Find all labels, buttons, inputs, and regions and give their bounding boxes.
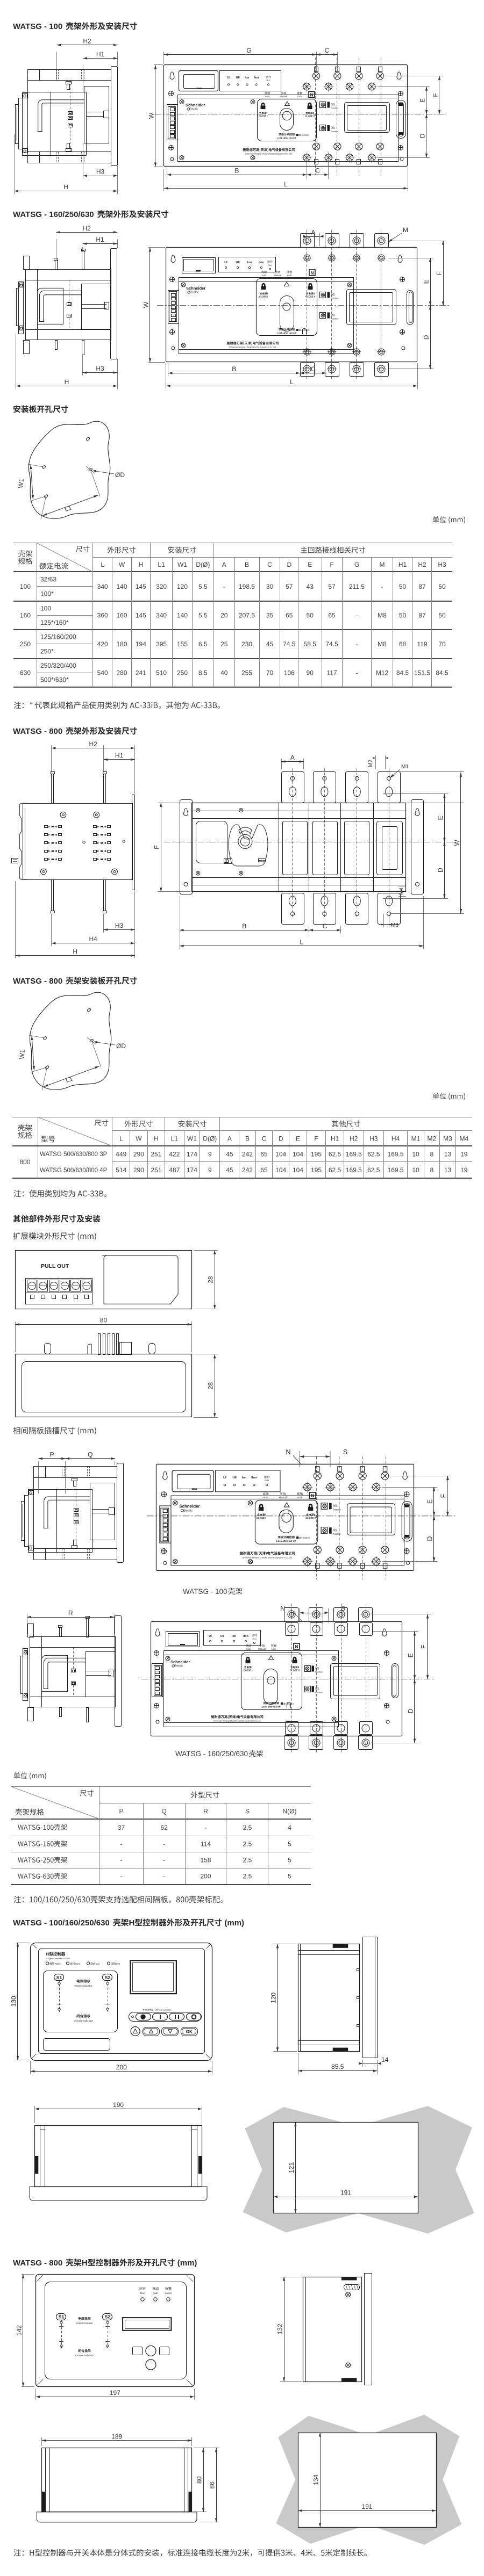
svg-text:W1: W1 [187, 1135, 197, 1142]
svg-text:H2: H2 [83, 225, 91, 232]
svg-text:-: - [356, 669, 358, 676]
svg-text:A: A [227, 1135, 232, 1142]
svg-text:B: B [242, 922, 246, 930]
svg-text:85.5: 85.5 [331, 2063, 344, 2070]
svg-text:80: 80 [196, 2476, 203, 2484]
svg-text:P: P [119, 1808, 123, 1815]
svg-text:W1: W1 [17, 478, 25, 489]
svg-text:62.5: 62.5 [329, 1150, 341, 1158]
svg-text:35: 35 [266, 612, 274, 619]
svg-text:R: R [203, 1808, 208, 1815]
svg-text:Schneider Wingoal (Tianjin) El: Schneider Wingoal (Tianjin) Electric Equ… [229, 347, 277, 349]
svg-text:H4: H4 [89, 935, 98, 943]
svg-text:9: 9 [208, 1150, 212, 1158]
svg-text:CLOSE II: CLOSE II [290, 1669, 300, 1672]
svg-text:L1: L1 [158, 561, 165, 568]
svg-text:A: A [290, 754, 295, 761]
svg-text:IIon: IIon [254, 76, 259, 80]
svg-text:D: D [287, 561, 291, 568]
svg-text:119: 119 [417, 640, 427, 648]
svg-text:M1: M1 [411, 1135, 421, 1142]
svg-text:142: 142 [16, 2325, 23, 2336]
svg-text:WATSG - 160/250/630: WATSG - 160/250/630 [175, 1750, 248, 1758]
svg-text:194: 194 [136, 640, 146, 648]
svg-text:IIon: IIon [243, 1635, 248, 1638]
svg-text:C: C [267, 561, 272, 568]
svg-text:45: 45 [226, 1166, 233, 1174]
svg-text:Lock: Lock [297, 1496, 303, 1499]
svg-text:Electric: Electric [174, 1665, 183, 1668]
svg-text:449: 449 [116, 1150, 126, 1158]
svg-text:13: 13 [444, 1166, 452, 1174]
svg-text:140: 140 [177, 612, 188, 619]
svg-text:-: - [120, 1840, 123, 1848]
svg-text:R: R [68, 1610, 73, 1617]
svg-text:Manual operation: Manual operation [155, 2009, 172, 2011]
svg-text:F: F [153, 845, 161, 849]
svg-text:S1: S1 [59, 2314, 65, 2320]
svg-text:140: 140 [116, 583, 127, 590]
svg-text:114: 114 [201, 1840, 211, 1848]
svg-text:WATSG 500/630/800 4P: WATSG 500/630/800 4P [40, 1167, 108, 1174]
svg-text:-: - [163, 1857, 165, 1864]
svg-text:132: 132 [276, 2324, 284, 2334]
svg-text:H2: H2 [350, 1135, 358, 1142]
svg-text:80: 80 [100, 1317, 108, 1324]
svg-text:169.5: 169.5 [388, 1150, 404, 1158]
svg-text:255: 255 [241, 669, 252, 676]
svg-text:Ø≈3.5mm: Ø≈3.5mm [283, 1702, 294, 1705]
svg-text:68: 68 [399, 640, 407, 648]
svg-text:Power Indicator: Power Indicator [74, 1985, 92, 1988]
svg-text:L1: L1 [171, 1135, 179, 1142]
svg-text:87: 87 [418, 612, 426, 619]
svg-text:L: L [300, 938, 303, 946]
svg-text:65: 65 [260, 1150, 268, 1158]
svg-text:F: F [440, 1493, 447, 1498]
svg-text:B: B [234, 167, 239, 175]
svg-text:F: F [432, 93, 439, 97]
svg-text:E: E [407, 1653, 415, 1657]
svg-text:8: 8 [430, 1166, 433, 1174]
svg-text:Lock after I&II off: Lock after I&II off [261, 1706, 281, 1708]
svg-text:H3: H3 [96, 168, 105, 176]
svg-text:190: 190 [113, 2101, 124, 2109]
svg-text:WATSG - 160/250/630: WATSG - 160/250/630 [13, 210, 96, 219]
svg-text:6.5: 6.5 [198, 640, 208, 648]
svg-text:90: 90 [307, 669, 314, 676]
svg-text:UII: UII [232, 1476, 237, 1480]
svg-text:191: 191 [361, 2503, 372, 2510]
svg-text:S2: S2 [105, 1975, 111, 1980]
svg-text:Schneider Wingoal (Tianjin) El: Schneider Wingoal (Tianjin) Electric Equ… [213, 1720, 261, 1722]
svg-text:-: - [381, 583, 383, 590]
svg-text:125*/160*: 125*/160* [40, 619, 69, 626]
svg-text:74.5: 74.5 [283, 640, 296, 648]
svg-text:100: 100 [20, 583, 31, 590]
svg-text:Position: Position [315, 1671, 323, 1673]
svg-text:D: D [426, 1536, 433, 1541]
svg-text:H3: H3 [96, 365, 104, 372]
svg-text:Run: Run [266, 79, 270, 82]
svg-text:D: D [419, 133, 426, 138]
svg-text:N: N [295, 1644, 298, 1649]
svg-text:251: 251 [151, 1166, 161, 1174]
svg-text:Ø≈3.5mm: Ø≈3.5mm [299, 134, 309, 136]
svg-text:57: 57 [286, 583, 293, 590]
svg-text:198.5: 198.5 [239, 583, 255, 590]
svg-text:E: E [437, 816, 444, 820]
svg-text:W: W [453, 839, 461, 846]
svg-text:S: S [245, 1808, 250, 1815]
svg-text:UII: UII [220, 1635, 224, 1638]
svg-text:514: 514 [116, 1166, 126, 1174]
svg-text:M2: M2 [427, 1135, 436, 1142]
svg-text:65: 65 [260, 1166, 268, 1174]
svg-text:H: H [154, 1135, 159, 1142]
svg-text:G: G [354, 561, 359, 568]
svg-text:62.5: 62.5 [367, 1166, 380, 1174]
svg-text:-: - [223, 583, 225, 590]
svg-text:N: N [280, 1605, 285, 1612]
svg-text:Lock: Lock [287, 274, 293, 277]
svg-text:H: H [63, 183, 68, 191]
svg-text:5: 5 [288, 1857, 291, 1864]
svg-text:30: 30 [266, 583, 274, 590]
svg-text:28: 28 [207, 1276, 215, 1283]
svg-text:Q: Q [88, 1451, 92, 1459]
svg-text:(mm): (mm) [222, 1918, 244, 1928]
svg-text:H: H [129, 1918, 135, 1928]
svg-text:M1: M1 [401, 764, 409, 770]
svg-text:207.5: 207.5 [239, 612, 255, 619]
svg-text:8: 8 [430, 1150, 433, 1158]
svg-text:250: 250 [20, 640, 31, 648]
svg-text:Manual: Manual [280, 95, 287, 98]
svg-text:87: 87 [418, 583, 426, 590]
svg-text:280: 280 [116, 669, 127, 676]
svg-text:Electric: Electric [183, 1509, 193, 1512]
svg-text:120: 120 [177, 583, 188, 590]
svg-text:106: 106 [284, 669, 295, 676]
svg-text:(mm): (mm) [175, 2258, 197, 2268]
svg-text:Ø≈3.5mm: Ø≈3.5mm [299, 329, 309, 331]
svg-text:E: E [423, 279, 430, 284]
svg-text:Ion: Ion [247, 261, 252, 264]
svg-text:Run: Run [265, 1479, 269, 1482]
svg-text:Position: Position [331, 107, 338, 110]
svg-text:UI: UI [223, 1476, 226, 1480]
svg-text:UI: UI [209, 1635, 212, 1638]
svg-text:S1: S1 [56, 1975, 62, 1980]
svg-text:W: W [136, 1135, 142, 1142]
svg-text:D: D [407, 1708, 415, 1713]
svg-text:Ion: Ion [245, 76, 250, 80]
svg-text:13: 13 [444, 1150, 452, 1158]
svg-text:S: S [343, 1448, 347, 1456]
svg-text:M2: M2 [368, 760, 374, 767]
svg-text:422: 422 [169, 1150, 180, 1158]
svg-text:H2: H2 [83, 37, 91, 45]
svg-text:5.5: 5.5 [198, 612, 208, 619]
svg-text:360: 360 [97, 612, 108, 619]
svg-text:160: 160 [20, 612, 31, 619]
svg-text:L: L [284, 181, 288, 188]
svg-text:Run: Run [268, 264, 272, 266]
svg-text:250*: 250* [40, 647, 54, 655]
svg-text:10: 10 [412, 1166, 419, 1174]
svg-text:H3: H3 [115, 922, 124, 929]
svg-text:160: 160 [116, 612, 127, 619]
svg-text:Lock after I&II off: Lock after I&II off [277, 137, 296, 140]
svg-text:Auto: Auto [265, 95, 270, 98]
svg-text:251: 251 [151, 1150, 161, 1158]
svg-text:250/320/400: 250/320/400 [40, 662, 76, 669]
svg-text:5: 5 [288, 1840, 291, 1848]
svg-text:43: 43 [307, 583, 314, 590]
svg-text:H1: H1 [331, 1135, 339, 1142]
svg-text:Closure Indicator: Closure Indicator [75, 2354, 94, 2357]
svg-text:CLOSE II: CLOSE II [305, 115, 315, 118]
svg-text:Manual: Manual [274, 274, 281, 277]
svg-text:117: 117 [326, 669, 337, 676]
svg-text:2.5: 2.5 [243, 1824, 252, 1831]
svg-text:230: 230 [241, 640, 252, 648]
svg-text:H4: H4 [392, 1135, 400, 1142]
svg-text:151.5: 151.5 [414, 669, 430, 676]
svg-text:F: F [314, 1135, 318, 1142]
svg-text:8.5: 8.5 [198, 669, 208, 676]
svg-text:CLOSE I: CLOSE I [257, 1517, 266, 1519]
svg-text:G: G [246, 47, 251, 54]
svg-text:D(Ø): D(Ø) [196, 561, 210, 568]
svg-text:L: L [101, 561, 104, 568]
svg-text:2.5: 2.5 [243, 1840, 252, 1848]
svg-text:74.5: 74.5 [325, 640, 338, 648]
svg-text:Run: Run [140, 2292, 145, 2295]
svg-text:145: 145 [136, 583, 146, 590]
svg-text:Lock: Lock [297, 95, 303, 98]
svg-text:104: 104 [275, 1166, 286, 1174]
svg-text:WATSG - 800: WATSG - 800 [13, 727, 65, 736]
svg-text:Position: Position [333, 1533, 341, 1535]
svg-text:WATSG - 100: WATSG - 100 [183, 1588, 227, 1596]
svg-text:M4: M4 [459, 1135, 468, 1142]
svg-text:H: H [65, 378, 69, 386]
svg-text:50: 50 [438, 583, 446, 590]
svg-text:S: S [341, 1605, 345, 1612]
svg-text:-: - [120, 1873, 123, 1880]
svg-text:M8: M8 [378, 640, 387, 648]
svg-text:100*: 100* [40, 590, 54, 598]
svg-text:N: N [286, 1448, 290, 1456]
svg-text:630: 630 [20, 669, 31, 676]
svg-text:Schneider Wingoal (Tianjin) El: Schneider Wingoal (Tianjin) Electric Equ… [243, 1556, 293, 1558]
svg-text:195: 195 [311, 1166, 322, 1174]
svg-text:IIon: IIon [251, 1476, 257, 1480]
svg-text:32/63: 32/63 [40, 575, 56, 583]
svg-text:62.5: 62.5 [329, 1166, 341, 1174]
svg-text:Ion: Ion [232, 1635, 237, 1638]
svg-text:Manual: Manual [279, 1496, 287, 1499]
svg-text:104: 104 [293, 1150, 303, 1158]
svg-text:169.5: 169.5 [346, 1166, 362, 1174]
svg-text:E: E [296, 1135, 300, 1142]
svg-text:Schneider: Schneider [186, 286, 205, 291]
svg-text:Com: Com [75, 1962, 80, 1965]
svg-text:19: 19 [460, 1150, 468, 1158]
svg-text:242: 242 [242, 1166, 253, 1174]
svg-text:C: C [315, 167, 320, 175]
svg-text:Auto: Auto [262, 274, 267, 277]
svg-text:E: E [419, 98, 426, 103]
svg-text:WATSG - 800: WATSG - 800 [13, 2258, 65, 2268]
svg-text:ØD: ØD [116, 1042, 126, 1050]
svg-text:197: 197 [110, 2389, 120, 2397]
svg-text:28: 28 [207, 1382, 215, 1390]
svg-text:70: 70 [438, 640, 446, 648]
svg-text:Fire: Fire [116, 1962, 120, 1965]
svg-text:134: 134 [312, 2474, 320, 2485]
svg-text:PULL OUT: PULL OUT [41, 1263, 69, 1269]
svg-text:WATSG 500/630/800 3P: WATSG 500/630/800 3P [40, 1151, 108, 1158]
svg-text:169.5: 169.5 [388, 1166, 404, 1174]
svg-text:D(Ø): D(Ø) [203, 1135, 217, 1142]
svg-text:H3: H3 [438, 561, 446, 568]
svg-text:Schneider: Schneider [179, 1504, 200, 1509]
svg-text:H1: H1 [96, 236, 104, 243]
svg-text:195: 195 [311, 1150, 322, 1158]
svg-text:420: 420 [97, 640, 108, 648]
svg-text:37: 37 [118, 1824, 125, 1831]
svg-text:H3: H3 [369, 1135, 378, 1142]
svg-text:-: - [163, 1873, 165, 1880]
svg-text:540: 540 [97, 669, 108, 676]
svg-text:121: 121 [288, 2162, 295, 2173]
svg-text:62: 62 [160, 1824, 168, 1831]
svg-text:Electric: Electric [190, 291, 199, 294]
svg-text:19: 19 [460, 1166, 468, 1174]
svg-text:IIon: IIon [259, 261, 264, 264]
svg-text:45: 45 [266, 640, 274, 648]
svg-text:250: 250 [177, 669, 188, 676]
svg-text:E: E [426, 1499, 433, 1504]
svg-text:UI: UI [227, 76, 230, 80]
svg-text:D: D [423, 335, 430, 340]
svg-text:50: 50 [399, 583, 407, 590]
svg-text:UI: UI [224, 261, 227, 264]
svg-text:-: - [120, 1857, 123, 1864]
svg-text:B: B [232, 365, 236, 373]
svg-text:5: 5 [288, 1873, 291, 1880]
svg-text:A: A [222, 561, 226, 568]
svg-text:Alarm: Alarm [165, 2292, 172, 2295]
svg-text:200: 200 [116, 2063, 127, 2071]
svg-text:Closure Indicator: Closure Indicator [74, 2019, 94, 2023]
svg-text:H: H [139, 561, 144, 568]
svg-text:H2: H2 [89, 740, 98, 748]
svg-text:D: D [279, 1135, 283, 1142]
svg-text:120: 120 [270, 1992, 277, 2003]
svg-text:Position: Position [331, 130, 338, 133]
svg-text:Run: Run [252, 1637, 256, 1640]
svg-text:P: P [49, 1451, 54, 1459]
svg-text:169.5: 169.5 [346, 1150, 362, 1158]
svg-text:Alarm: Alarm [55, 1962, 61, 1965]
svg-text:Lock: Lock [272, 1648, 277, 1650]
svg-text:50: 50 [438, 612, 446, 619]
svg-text:-: - [205, 1824, 207, 1831]
svg-text:145: 145 [136, 612, 146, 619]
svg-text:CLOSE I: CLOSE I [259, 295, 268, 298]
svg-text:F: F [436, 271, 443, 275]
svg-text:86: 86 [209, 2481, 216, 2489]
svg-text:E: E [308, 561, 312, 568]
svg-text:Electric: Electric [189, 108, 198, 111]
svg-text:L: L [119, 1135, 123, 1142]
svg-text:CLOSE II: CLOSE II [305, 295, 315, 298]
svg-text:M8: M8 [378, 612, 387, 619]
svg-text:9: 9 [208, 1166, 212, 1174]
svg-text:487: 487 [169, 1166, 180, 1174]
svg-text:M12: M12 [376, 669, 389, 676]
svg-text:OK: OK [186, 2030, 193, 2034]
svg-text:Auto: Auto [246, 1648, 251, 1650]
svg-text:320: 320 [156, 583, 167, 590]
svg-text:5.5: 5.5 [198, 583, 208, 590]
svg-text:Schneider Wingoal (Tianjin) El: Schneider Wingoal (Tianjin) Electric Equ… [245, 153, 293, 155]
svg-text:50: 50 [399, 612, 407, 619]
svg-text:2.5: 2.5 [243, 1873, 252, 1880]
svg-text:WATSG - 800: WATSG - 800 [13, 977, 65, 986]
svg-text:CLOSE II: CLOSE II [305, 1517, 316, 1519]
svg-text:Power Indicator: Power Indicator [76, 2322, 93, 2325]
svg-text:N: N [311, 271, 314, 276]
svg-text:104: 104 [275, 1150, 286, 1158]
svg-text:Position: Position [315, 1691, 323, 1694]
svg-text:2.5: 2.5 [243, 1857, 252, 1864]
svg-text:Auto: Auto [153, 2292, 158, 2295]
svg-text:100: 100 [40, 605, 51, 612]
svg-text:H1: H1 [115, 752, 124, 759]
svg-text:N: N [310, 93, 314, 98]
svg-text:65: 65 [286, 612, 293, 619]
svg-text:W1: W1 [18, 1049, 26, 1060]
svg-text:H: H [73, 948, 77, 955]
svg-text:L: L [290, 378, 294, 386]
svg-text:C: C [324, 47, 329, 54]
svg-text:H: H [82, 2258, 88, 2268]
svg-text:F: F [330, 561, 333, 568]
svg-text:UII: UII [236, 76, 240, 80]
svg-text:B: B [245, 561, 249, 568]
svg-text:25: 25 [220, 640, 228, 648]
svg-text:CLOSE I: CLOSE I [244, 1669, 253, 1672]
svg-text:-: - [356, 640, 358, 648]
svg-text:B: B [245, 1135, 250, 1142]
svg-text:W: W [148, 112, 155, 119]
svg-text:340: 340 [97, 583, 108, 590]
svg-text:N: N [311, 1493, 314, 1498]
svg-text:H1: H1 [398, 561, 407, 568]
svg-text:84.5: 84.5 [436, 669, 449, 676]
svg-text:F: F [420, 1645, 428, 1649]
svg-text:500*/630*: 500*/630* [40, 676, 69, 684]
svg-text:M: M [380, 561, 385, 568]
svg-text:UII: UII [236, 261, 240, 264]
svg-text:290: 290 [133, 1150, 144, 1158]
svg-text:58.5: 58.5 [304, 640, 317, 648]
